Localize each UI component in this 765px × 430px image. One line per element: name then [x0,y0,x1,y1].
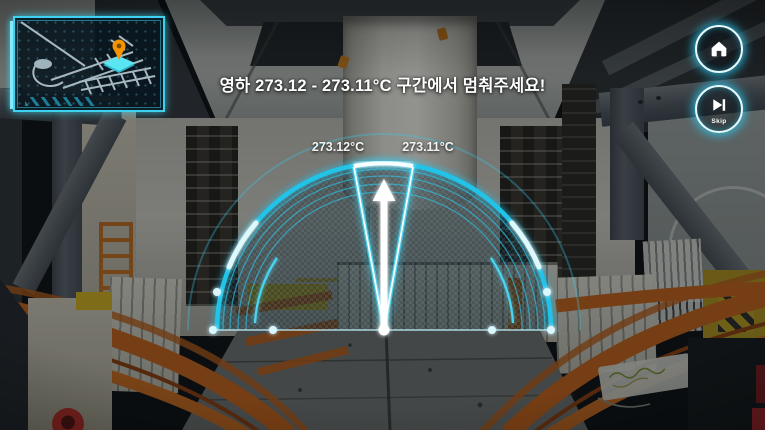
minimap-tank [34,59,52,69]
skip-forward-icon [710,96,728,114]
home-icon [708,38,730,60]
minimap-tracks [21,22,155,94]
gauge-right-label: 273.11°C [402,140,454,154]
minimap-accent-bar [10,21,13,109]
game-viewport: 273.12°C 273.11°C 영하 273.12 - 273.11°C 구… [0,0,765,430]
temperature-gauge [160,100,610,350]
skip-button-label: Skip [697,118,741,125]
minimap-map [15,18,163,110]
skip-button[interactable]: Skip [695,85,743,133]
gauge-left-label: 273.12°C [312,140,364,154]
minimap [13,16,165,112]
home-button[interactable] [695,25,743,73]
